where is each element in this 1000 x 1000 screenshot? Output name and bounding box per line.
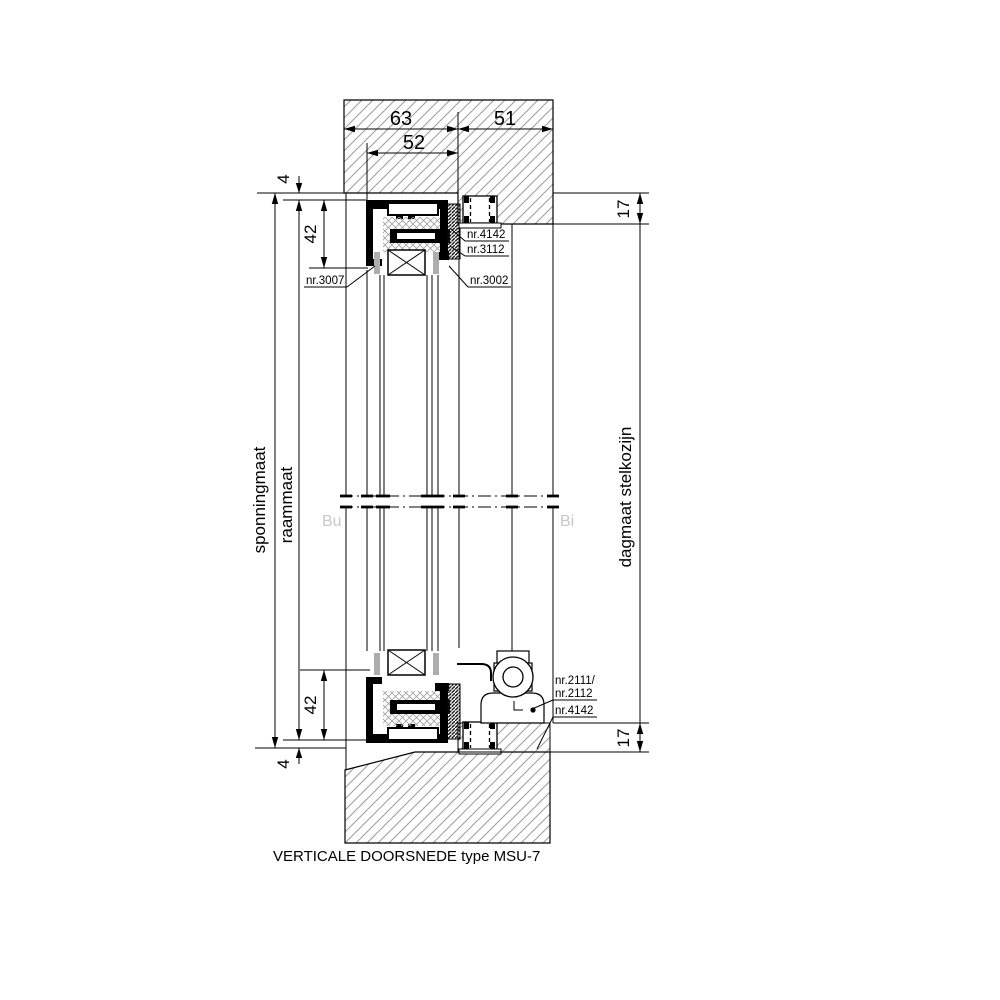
compression-seal bbox=[447, 684, 460, 739]
dim-profile-height-bottom: 42 bbox=[301, 696, 320, 715]
anchor-hook bbox=[464, 196, 469, 203]
part-number-text: nr.4142 bbox=[555, 705, 593, 717]
setting-block bbox=[433, 653, 439, 675]
anchor-hook bbox=[464, 722, 469, 729]
part-number-text: nr.3112 bbox=[467, 244, 505, 256]
part-number-text: nr.3007 bbox=[306, 275, 344, 287]
anchor-hook bbox=[490, 216, 495, 223]
glazing-clip-slot bbox=[388, 728, 438, 740]
dim-clearance-bottom: 4 bbox=[274, 759, 293, 768]
dim-reveal-top: 17 bbox=[614, 200, 633, 219]
setting-block bbox=[374, 653, 380, 675]
technical-drawing-page: Bu Bi 63 51 52 sponningmaat raammaat bbox=[0, 0, 1000, 1000]
profile-left-bar bbox=[366, 200, 373, 266]
leader-dot bbox=[530, 707, 535, 712]
part-number-text: nr.2111/ bbox=[555, 675, 596, 687]
dim-profile-height-top: 42 bbox=[301, 225, 320, 244]
part-number-text: nr.4142 bbox=[467, 229, 505, 241]
thermal-break-cavity bbox=[397, 704, 435, 710]
setting-block bbox=[374, 252, 380, 274]
anchor-hook bbox=[490, 196, 495, 203]
dim-frame-depth: 63 bbox=[390, 108, 412, 130]
glazing-clip-slot bbox=[388, 203, 438, 215]
dim-stelkozijn-depth: 51 bbox=[494, 108, 516, 130]
inside-marker: Bi bbox=[560, 513, 574, 530]
thermal-break-cavity bbox=[397, 233, 435, 239]
bottom-sill-hatched-block bbox=[345, 752, 550, 843]
label-dagmaat-stelkozijn: dagmaat stelkozijn bbox=[616, 427, 635, 568]
setting-block bbox=[433, 252, 439, 274]
part-number-text: nr.3002 bbox=[470, 275, 508, 287]
operator-knob-inner bbox=[503, 667, 523, 687]
anchor-hook bbox=[464, 742, 469, 749]
dim-clearance-top: 4 bbox=[274, 174, 293, 183]
anchor-hook bbox=[464, 216, 469, 223]
drawing-caption: VERTICALE DOORSNEDE type MSU-7 bbox=[273, 848, 540, 865]
label-sponningmaat: sponningmaat bbox=[250, 446, 269, 553]
profile-top-left-stub bbox=[366, 677, 382, 684]
bottom-frame-anchor bbox=[459, 722, 501, 754]
profile-left-bar bbox=[366, 677, 373, 743]
anchor-hook bbox=[490, 742, 495, 749]
dim-reveal-bottom: 17 bbox=[614, 729, 633, 748]
label-raammaat: raammaat bbox=[277, 466, 296, 543]
anchor-base-plate bbox=[459, 223, 501, 228]
part-number-text: nr.2112 bbox=[555, 688, 593, 700]
outside-marker: Bu bbox=[322, 513, 342, 530]
top-frame-anchor bbox=[459, 196, 501, 228]
vertical-section-drawing: Bu Bi 63 51 52 sponningmaat raammaat bbox=[0, 0, 1000, 1000]
dim-sash-depth: 52 bbox=[403, 132, 425, 154]
